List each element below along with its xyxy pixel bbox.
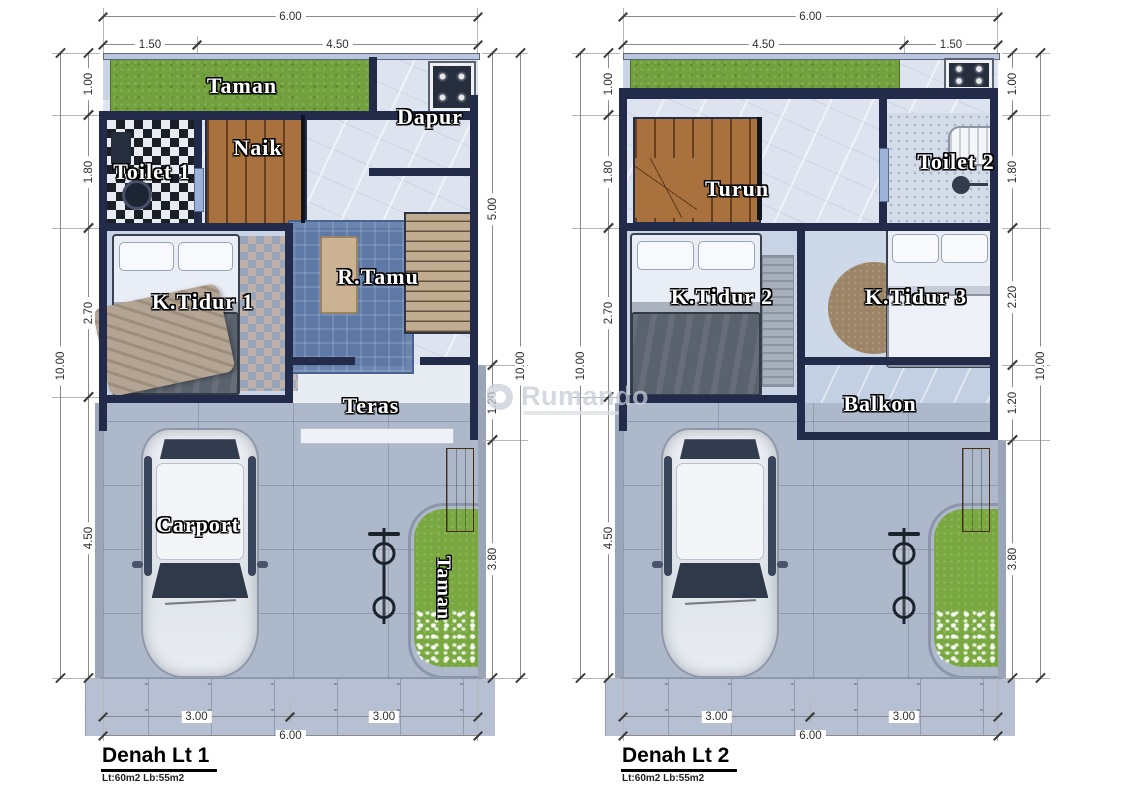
stove-icon-plan2	[944, 58, 994, 92]
dim-plan1-right-total: 10.00	[520, 53, 521, 678]
car-roof	[676, 463, 763, 560]
car-side-window	[664, 456, 672, 576]
wall	[990, 88, 998, 440]
dim-plan1-bottom-total: 6.00	[103, 735, 478, 736]
dim-value: 1.00	[603, 68, 615, 100]
plan1-left-fence	[95, 403, 103, 678]
shower-icon	[952, 176, 970, 194]
room-label-ktidur3: K.Tidur 3	[865, 284, 967, 310]
dim-value: 2.70	[603, 296, 615, 328]
plan1-title: Denah Lt 1	[101, 744, 217, 772]
witness-line	[997, 678, 998, 741]
dim-plan1-top-a: 1.50	[103, 44, 197, 45]
room-label-toilet1: Toilet 1	[113, 159, 190, 185]
stove-burners	[433, 66, 471, 108]
bedside-mat	[762, 255, 794, 387]
witness-line	[477, 678, 478, 741]
stair-rail	[757, 117, 762, 220]
wall	[369, 57, 377, 119]
door-toilet1	[194, 168, 204, 212]
wall	[879, 223, 998, 231]
bicycle-icon-plan1	[368, 520, 400, 632]
dim-plan2-right-total: 10.00	[1040, 53, 1041, 678]
witness-line	[290, 700, 291, 722]
dim-plan2-right-c: 2.20	[1012, 228, 1013, 365]
plan2-area-note: Lt:60m2 Lb:55m2	[622, 773, 704, 784]
wall	[619, 88, 627, 403]
car-side-window	[248, 456, 256, 576]
dim-value: 2.20	[1007, 280, 1019, 312]
dim-plan1-bottom-b: 3.00	[290, 716, 478, 717]
room-label-balkon: Balkon	[843, 391, 916, 417]
dim-value: 10.00	[515, 346, 527, 385]
bicycle-wheel	[373, 542, 396, 565]
room-label-teras: Teras	[343, 393, 400, 419]
pillow-icon	[637, 241, 694, 270]
dim-value: 1.50	[936, 39, 966, 51]
dim-value: 6.00	[795, 11, 825, 23]
dim-value: 1.00	[1007, 68, 1019, 100]
watermark-tagline-bar	[523, 411, 619, 415]
witness-line	[810, 700, 811, 722]
plan1-area-note: Lt:60m2 Lb:55m2	[102, 773, 184, 784]
dim-plan2-left-c: 2.70	[608, 228, 609, 397]
wall	[420, 357, 478, 365]
car-icon-plan2	[661, 428, 779, 678]
door-toilet2	[879, 148, 889, 202]
pillow-icon	[892, 234, 939, 263]
floor-plan-sheet: Taman Dapur Naik Toilet 1 K.Tidur 1 R.Ta…	[0, 0, 1133, 800]
watermark-logo-icon	[487, 384, 513, 410]
bed-icon-bedroom2	[630, 233, 762, 397]
wall	[99, 111, 107, 403]
bicycle-handlebar	[368, 532, 400, 536]
dim-plan2-right-e: 3.80	[1012, 440, 1013, 678]
car-mirror	[652, 561, 663, 568]
bicycle-wheel	[893, 596, 916, 619]
wall	[369, 168, 478, 176]
plan1-right-fence	[478, 365, 486, 678]
wall	[797, 223, 805, 440]
car-icon-plan1	[141, 428, 259, 678]
plan2-garden-side	[934, 509, 998, 667]
dim-value: 3.80	[487, 543, 499, 575]
pillow-icon	[119, 242, 174, 271]
pillow-icon	[941, 234, 988, 263]
car-rear-window	[680, 439, 760, 459]
room-label-taman-side: Taman	[432, 556, 455, 620]
dim-plan1-left-c: 2.70	[88, 228, 89, 397]
stair-rail	[301, 115, 305, 223]
car-mirror	[257, 561, 268, 568]
dim-value: 4.50	[83, 521, 95, 553]
wall	[805, 357, 998, 365]
car-windshield	[672, 563, 769, 598]
pillow-icon	[698, 241, 755, 270]
room-label-rtamu: R.Tamu	[337, 264, 419, 290]
dim-value: 1.80	[1007, 155, 1019, 187]
bicycle-wheel	[893, 542, 916, 565]
dim-value: 6.00	[275, 730, 305, 742]
wall	[99, 403, 107, 431]
dim-plan1-left-a: 1.00	[88, 53, 89, 115]
dim-value: 3.00	[889, 711, 919, 723]
dim-plan2-right-d: 1.20	[1012, 365, 1013, 440]
plan2-title: Denah Lt 2	[621, 744, 737, 772]
plan2-left-fence	[615, 403, 623, 678]
bicycle-icon-plan2	[888, 520, 920, 632]
room-label-dapur: Dapur	[397, 104, 463, 130]
witness-line	[623, 678, 624, 741]
dim-value: 1.20	[1007, 386, 1019, 418]
room-label-carport: Carport	[156, 512, 240, 538]
room-label-toilet2: Toilet 2	[917, 149, 994, 175]
room-label-naik: Naik	[233, 135, 282, 161]
dim-value: 10.00	[1035, 346, 1047, 385]
dim-plan2-left-b: 1.80	[608, 115, 609, 228]
plan2-right-fence	[998, 440, 1006, 678]
dim-value: 1.80	[83, 155, 95, 187]
car-mirror	[132, 561, 143, 568]
dim-plan1-left-b: 1.80	[88, 115, 89, 228]
plan2-garden-top	[630, 58, 900, 91]
watermark-text: Rumando	[521, 381, 649, 412]
blanket	[631, 312, 761, 396]
dim-value: 3.00	[701, 711, 731, 723]
wall	[285, 223, 293, 403]
wall	[470, 365, 478, 440]
watermark: Rumando	[487, 381, 649, 412]
dim-plan2-top-b: 1.50	[904, 44, 998, 45]
dim-value: 4.50	[603, 521, 615, 553]
wall	[470, 95, 478, 365]
dim-plan2-left-a: 1.00	[608, 53, 609, 115]
wall	[619, 223, 887, 231]
room-label-turun: Turun	[705, 176, 769, 202]
wall	[285, 357, 355, 365]
wall	[623, 88, 998, 99]
car-side-window	[768, 456, 776, 576]
dim-value: 6.00	[795, 730, 825, 742]
dim-plan1-right-a: 5.00	[492, 53, 493, 365]
bicycle-wheel	[373, 596, 396, 619]
dim-value: 1.80	[603, 155, 615, 187]
dim-plan2-top-total: 6.00	[623, 16, 998, 17]
flowers	[934, 609, 998, 667]
dim-value: 6.00	[275, 11, 305, 23]
car-side-window	[144, 456, 152, 576]
room-label-ktidur1: K.Tidur 1	[152, 289, 254, 315]
dim-plan2-bottom-total: 6.00	[623, 735, 998, 736]
dim-value: 10.00	[575, 346, 587, 385]
room-label-ktidur2: K.Tidur 2	[671, 284, 773, 310]
wall	[99, 395, 293, 403]
dim-plan2-right-b: 1.80	[1012, 115, 1013, 228]
dim-value: 3.00	[369, 711, 399, 723]
wood-gate-plan2	[962, 448, 990, 532]
room-label-taman: Taman	[207, 73, 277, 99]
dim-value: 3.00	[181, 711, 211, 723]
dim-value: 4.50	[748, 39, 778, 51]
dim-value: 1.50	[135, 39, 165, 51]
stair-winder	[635, 158, 697, 218]
dim-plan2-left-total: 10.00	[580, 53, 581, 678]
car-rear-window	[160, 439, 240, 459]
dim-value: 1.00	[83, 68, 95, 100]
dim-plan2-bottom-b: 3.00	[810, 716, 998, 717]
wall	[797, 432, 998, 440]
dim-plan2-left-d: 4.50	[608, 397, 609, 678]
dim-value: 10.00	[55, 346, 67, 385]
witness-line	[103, 678, 104, 741]
dim-plan1-bottom-a: 3.00	[103, 716, 290, 717]
bicycle-handlebar	[888, 532, 920, 536]
wood-gate-plan1	[446, 448, 474, 532]
dim-plan1-top-b: 4.50	[197, 44, 478, 45]
dim-plan2-bottom-a: 3.00	[623, 716, 810, 717]
car-windshield	[152, 563, 249, 598]
dim-plan2-right-a: 1.00	[1012, 53, 1013, 115]
stove-burners	[949, 63, 989, 87]
dim-plan1-top-total: 6.00	[103, 16, 478, 17]
wall	[99, 223, 293, 231]
dim-value: 5.00	[487, 193, 499, 225]
dim-plan2-top-a: 4.50	[623, 44, 904, 45]
terrace-step	[300, 428, 454, 444]
dim-value: 2.70	[83, 296, 95, 328]
dim-plan1-right-c: 3.80	[492, 440, 493, 678]
dim-value: 3.80	[1007, 543, 1019, 575]
car-mirror	[777, 561, 788, 568]
plan1-front-fence	[103, 53, 480, 60]
pillow-icon	[178, 242, 233, 271]
dim-plan1-left-d: 4.50	[88, 397, 89, 678]
dim-plan1-left-total: 10.00	[60, 53, 61, 678]
dim-value: 4.50	[322, 39, 352, 51]
